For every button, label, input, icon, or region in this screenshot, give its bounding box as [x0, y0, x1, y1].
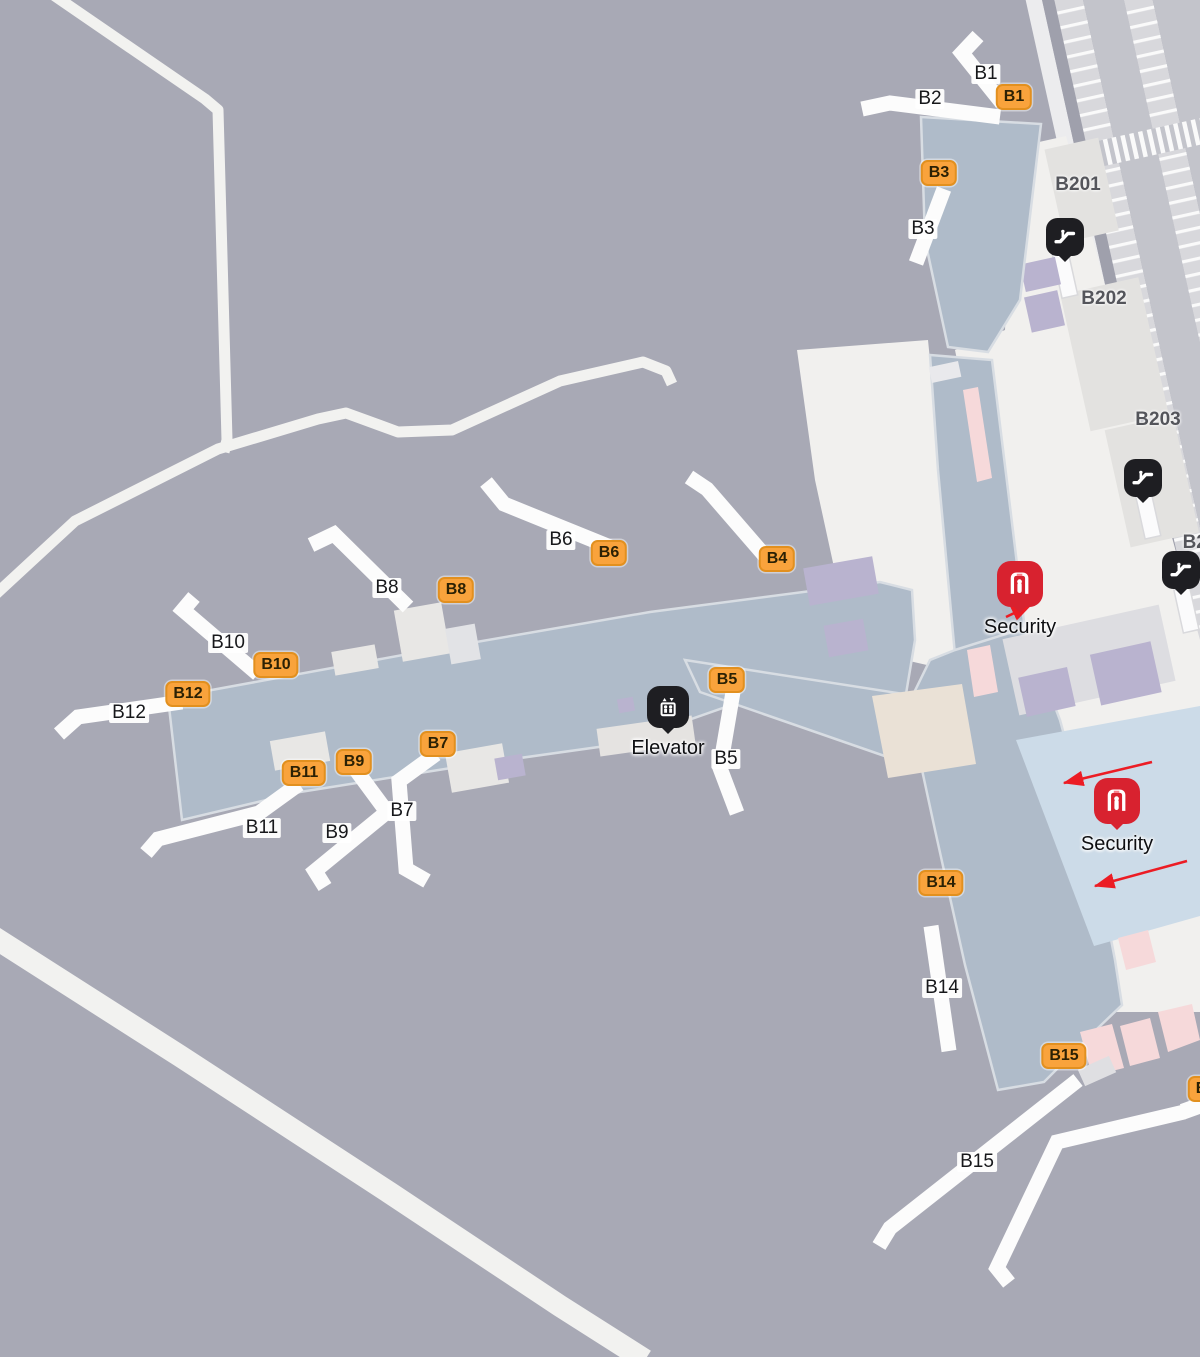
- elevator-poi-3: Elevator: [647, 686, 689, 728]
- gate-badge-b5-7[interactable]: B5: [709, 667, 745, 693]
- area-label-b203-2: B203: [1135, 409, 1180, 431]
- bridge-label-b6-3: B6: [546, 530, 575, 550]
- gate-badge-b8-4[interactable]: B8: [438, 577, 474, 603]
- bridge-label-b9-8: B9: [322, 823, 351, 843]
- elevator-icon[interactable]: [647, 686, 689, 728]
- gate-badge-b10-5[interactable]: B10: [253, 652, 298, 678]
- area-label-b201-0: B201: [1055, 174, 1100, 196]
- security-icon[interactable]: [1094, 778, 1140, 824]
- gate-badge-b11-10[interactable]: B11: [282, 760, 326, 786]
- security-label: Security: [984, 616, 1056, 639]
- bridge-label-b12-6: B12: [109, 703, 149, 723]
- bridge-label-b8-4: B8: [372, 578, 401, 598]
- gate-badge-b12-6[interactable]: B12: [165, 681, 210, 707]
- gate-badge-b3-1[interactable]: B3: [921, 160, 957, 186]
- gate-badge-b4-2[interactable]: B4: [759, 546, 795, 572]
- bridge-label-b1-0: B1: [971, 64, 1000, 84]
- gate-badge-b14-11[interactable]: B14: [918, 870, 963, 896]
- escalator-icon[interactable]: [1162, 551, 1200, 589]
- security-icon[interactable]: [997, 561, 1043, 607]
- gate-badge-b1-13[interactable]: B1: [1188, 1076, 1200, 1102]
- escalator-poi-0: [1046, 218, 1084, 256]
- gate-badge-b7-8[interactable]: B7: [420, 731, 456, 757]
- elevator-label: Elevator: [631, 737, 704, 760]
- security-poi-5: Security: [1094, 778, 1140, 824]
- bridge-label-b7-7: B7: [387, 801, 416, 821]
- security-label: Security: [1081, 833, 1153, 856]
- gate-badge-b1-0[interactable]: B1: [996, 84, 1032, 110]
- area-label-b202-1: B202: [1081, 288, 1126, 310]
- gate-badge-b15-12[interactable]: B15: [1041, 1043, 1086, 1069]
- map-overlay: B1B3B4B6B8B10B12B5B7B9B11B14B15B1B1B2B3B…: [0, 0, 1200, 1357]
- escalator-poi-1: [1124, 459, 1162, 497]
- bridge-label-b2-1: B2: [915, 89, 944, 109]
- bridge-label-b10-5: B10: [208, 633, 248, 653]
- airport-terminal-map: B1B3B4B6B8B10B12B5B7B9B11B14B15B1B1B2B3B…: [0, 0, 1200, 1357]
- bridge-label-b5-10: B5: [711, 749, 740, 769]
- bridge-label-b11-9: B11: [243, 818, 281, 838]
- escalator-icon[interactable]: [1124, 459, 1162, 497]
- gate-badge-b9-9[interactable]: B9: [336, 749, 372, 775]
- bridge-label-b15-12: B15: [957, 1152, 997, 1172]
- security-poi-4: Security: [997, 561, 1043, 607]
- escalator-poi-2: [1162, 551, 1200, 589]
- gate-badge-b6-3[interactable]: B6: [591, 540, 627, 566]
- escalator-icon[interactable]: [1046, 218, 1084, 256]
- bridge-label-b3-2: B3: [908, 219, 937, 239]
- bridge-label-b14-11: B14: [922, 978, 962, 998]
